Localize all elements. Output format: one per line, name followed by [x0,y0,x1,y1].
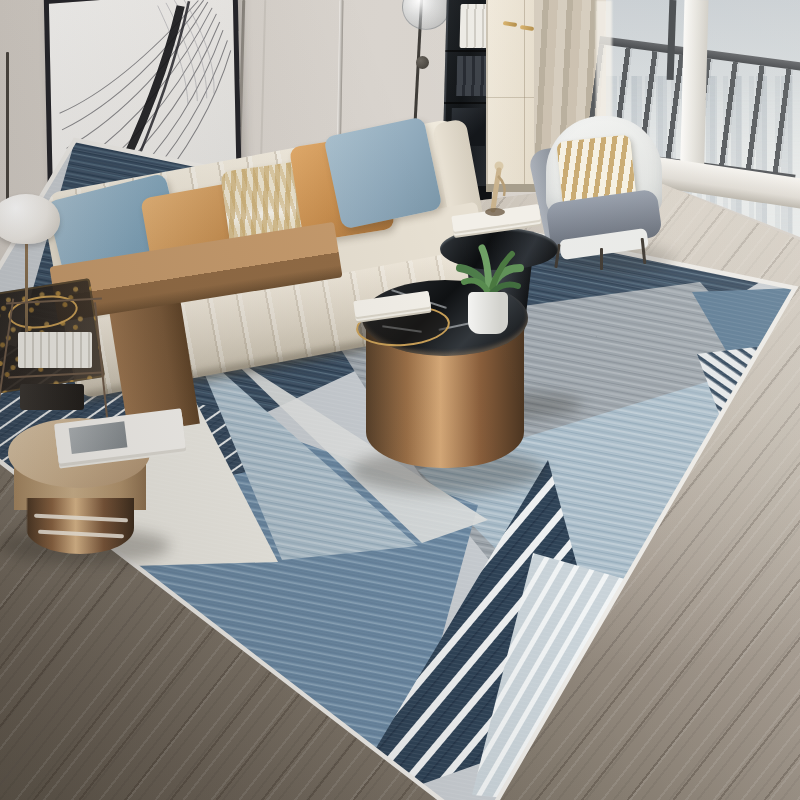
magazine-cover-photo [69,421,128,454]
floor-lamp-dome [0,194,60,244]
rack-wire [6,297,102,304]
rack-wire [94,302,108,418]
magazine-rack [4,298,122,426]
rack-wire [8,372,102,379]
figurine [478,158,518,218]
armchair-leg [600,248,603,270]
plant-pot [468,292,508,334]
side-table-bronze-base [26,498,134,554]
rack-dark-items [20,384,84,410]
living-room-photo: Modern living room with a geometric tria… [0,0,800,800]
rack-books [18,332,92,368]
